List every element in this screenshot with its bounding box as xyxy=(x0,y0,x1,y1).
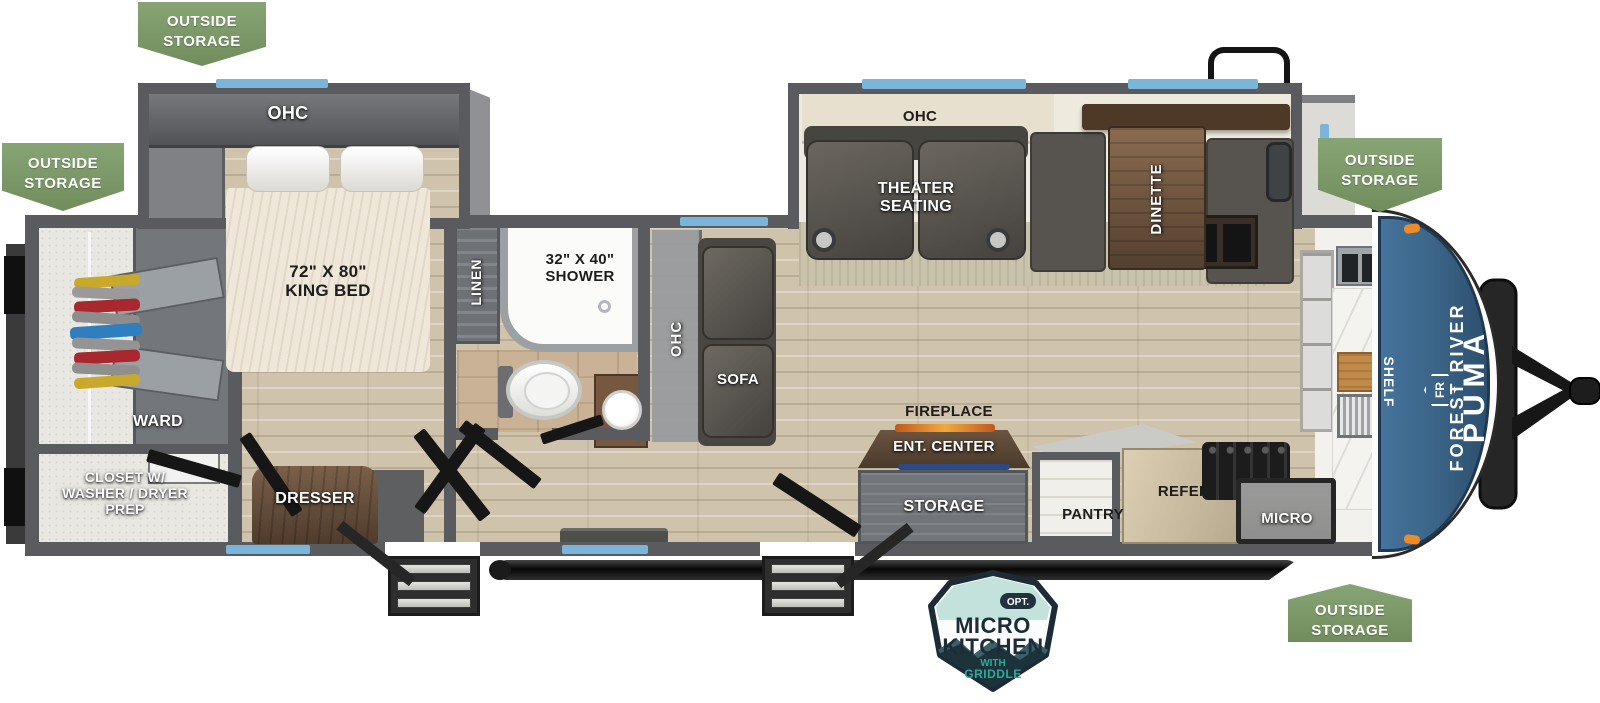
king-bed-pillow-left xyxy=(246,146,330,192)
outside-storage-badge-top: OUTSIDE STORAGE xyxy=(138,2,266,66)
shelf-label: SHELF xyxy=(1379,336,1397,428)
ent-center-label: ENT. CENTER xyxy=(874,438,1014,456)
hitch-coupler xyxy=(1570,378,1600,404)
outside-storage-badge-left: OUTSIDE STORAGE xyxy=(2,143,124,211)
bottom-window-bath xyxy=(562,545,648,554)
dinette-bench-left xyxy=(1030,132,1106,272)
step-tread xyxy=(771,598,845,608)
bedroom-slide-window xyxy=(216,79,328,88)
linen-label: LINEN xyxy=(468,236,486,328)
hall-ohc-label: OHC xyxy=(668,272,686,406)
closet-label: CLOSET W/ WASHER / DRYER PREP xyxy=(46,466,204,522)
kitchen-base-cabinets xyxy=(1300,250,1334,432)
micro-label: MICRO xyxy=(1246,510,1328,528)
entry-steps-1 xyxy=(388,556,480,616)
dinette-side-window xyxy=(1266,142,1292,202)
ward-closet-wall xyxy=(39,444,229,454)
living-slide-window-right xyxy=(1128,79,1258,89)
micro-kitchen-badge: OPT. MICRO KITCHEN WITH GRIDDLE xyxy=(926,570,1060,692)
theater-seating-label: THEATER SEATING xyxy=(840,178,992,218)
hitch-aframe-bottom xyxy=(1512,384,1574,440)
brand-model: PUMA xyxy=(1458,235,1492,535)
step-tread xyxy=(771,581,845,591)
shower-label: 32" X 40" SHOWER xyxy=(528,250,632,288)
step-tread xyxy=(771,564,845,574)
main-left-wall xyxy=(25,215,39,555)
shower-drain xyxy=(598,300,611,313)
badge-opt-text: OPT. xyxy=(1007,597,1029,608)
outside-storage-badge-bottom-right: OUTSIDE STORAGE xyxy=(1288,584,1412,642)
king-bed-pillow-right xyxy=(340,146,424,192)
sofa-label: SOFA xyxy=(702,371,774,389)
living-slide-window-left xyxy=(862,79,1026,89)
awning-tube xyxy=(497,560,1297,580)
pantry-label: PANTRY xyxy=(1038,506,1148,524)
step-tread xyxy=(397,598,471,608)
sofa-cushion-bottom xyxy=(702,344,774,438)
bottom-window-bedroom xyxy=(226,545,310,554)
king-bed-label: 72" X 80" KING BED xyxy=(248,260,408,302)
fireplace-strip xyxy=(895,424,995,432)
hitch-aframe-top xyxy=(1512,346,1574,396)
badge-kitchen-text: KITCHEN xyxy=(942,634,1043,659)
badge-griddle-text: GRIDDLE xyxy=(964,667,1022,681)
fireplace-label: FIREPLACE xyxy=(884,403,1014,421)
awning-tube-endcap xyxy=(489,560,511,580)
bedroom-ohc-label: OHC xyxy=(208,103,368,123)
floorplan-scene: FR FOREST RIVER PUMA OUTSIDE STORAGE OUT… xyxy=(0,0,1600,703)
bedroom-bath-wall xyxy=(444,228,456,542)
ward-label: WARD xyxy=(126,412,190,432)
theater-cupholder-left xyxy=(812,228,836,252)
hall-window xyxy=(680,217,768,226)
sofa-cushion-top xyxy=(702,246,774,340)
living-ohc-label: OHC xyxy=(870,108,970,126)
entry-door-opening-2 xyxy=(760,542,855,556)
theater-cupholder-right xyxy=(986,228,1010,252)
refer-label: REFER xyxy=(1134,483,1234,501)
dresser-label: DRESSER xyxy=(254,490,376,508)
main-top-wall-left xyxy=(25,215,147,228)
dinette-label: DINETTE xyxy=(1147,139,1167,259)
storage-label: STORAGE xyxy=(888,498,1000,516)
toilet-seat xyxy=(524,372,570,410)
ent-center-blue-strip xyxy=(898,464,1010,470)
entry-door-opening-1 xyxy=(385,542,480,556)
pantry-cabinet xyxy=(1032,452,1120,544)
bath-sink xyxy=(602,390,642,430)
